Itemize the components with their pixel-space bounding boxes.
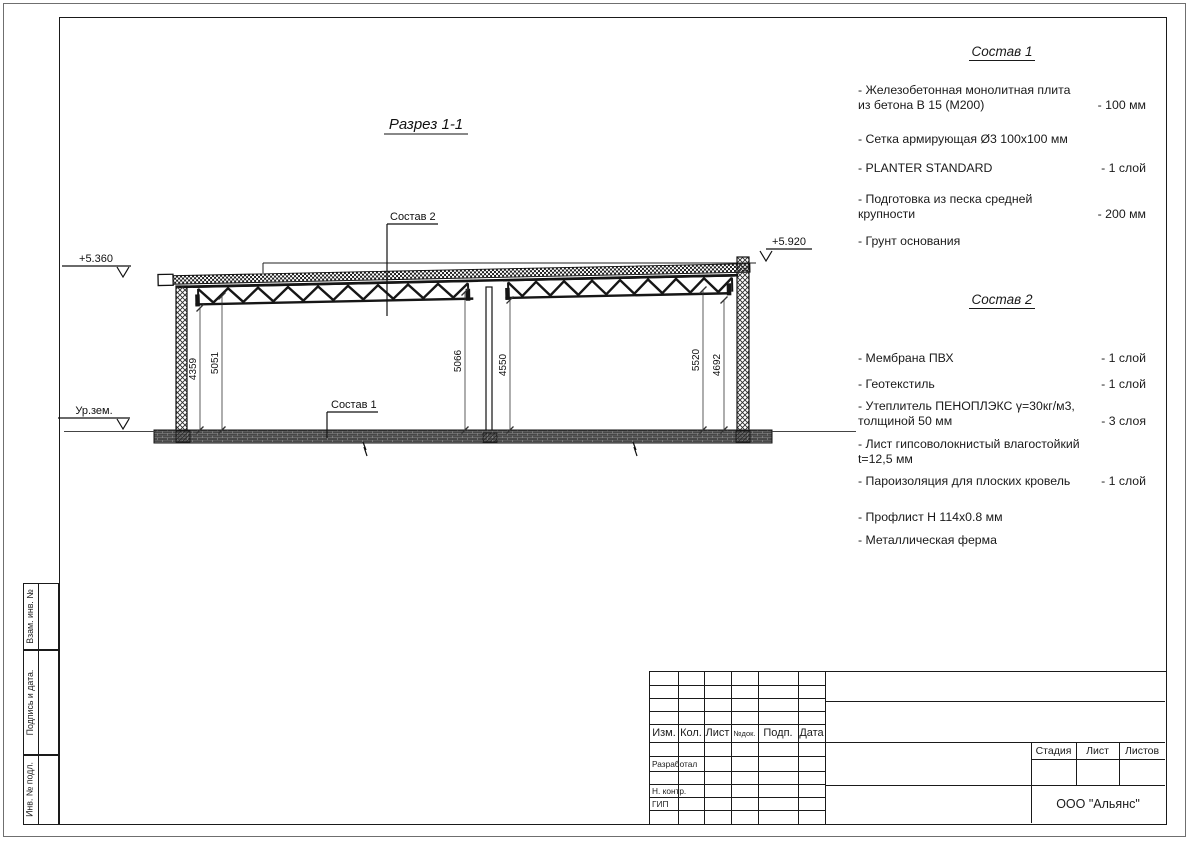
stamp-col-data: Дата	[798, 724, 825, 742]
stamp-stadia-label: Стадия	[1031, 742, 1076, 759]
title-block: Изм. Кол. Лист №док. Подп. Дата Разработ…	[649, 671, 1167, 825]
foundation-hatch-left	[176, 431, 190, 442]
material-value: - 100 мм	[1098, 98, 1146, 113]
material-name: - Профлист Н 114х0.8 мм	[858, 510, 1003, 525]
dim-text: 5520	[691, 348, 702, 371]
sostav2-panel: Состав 2 - Мембрана ПВХ - 1 слой - Геоте…	[858, 292, 1146, 548]
material-row: - Пароизоляция для плоских кровель - 1 с…	[858, 474, 1146, 489]
material-value: - 1 слой	[1101, 377, 1146, 392]
sostav2-title: Состав 2	[858, 292, 1146, 307]
dimension-5520: 5520	[691, 287, 707, 434]
sostav1-panel: Состав 1 - Железобетонная монолитная пли…	[858, 44, 1146, 249]
material-name: - Геотекстиль	[858, 377, 935, 392]
section-drawing: Разрез 1-1	[0, 0, 860, 560]
material-row: - Подготовка из песка средней крупности …	[858, 192, 1146, 221]
dim-text: 4550	[498, 353, 509, 376]
material-name: - Мембрана ПВХ	[858, 351, 954, 366]
dim-text: 5066	[453, 349, 464, 372]
material-row: - Железобетонная монолитная плита из бет…	[858, 83, 1146, 112]
stamp-listov-label: Листов	[1119, 742, 1165, 759]
leader-sostav1-text: Состав 1	[331, 399, 377, 411]
sostav2-title-text: Состав 2	[969, 292, 1036, 309]
side-label-vzam: Взам. инв. №	[23, 583, 38, 650]
material-value: - 200 мм	[1098, 207, 1146, 222]
leader-sostav2-text: Состав 2	[390, 211, 436, 223]
material-name: - Подготовка из песка средней крупности	[858, 192, 1032, 221]
wall-right	[737, 257, 749, 431]
view-title: Разрез 1-1	[384, 116, 468, 134]
material-row: - Лист гипсоволокнистый влагостойкий t=1…	[858, 437, 1146, 466]
material-row: - Мембрана ПВХ - 1 слой	[858, 351, 1146, 366]
sostav1-title: Состав 1	[858, 44, 1146, 59]
material-name: - Металлическая ферма	[858, 533, 997, 548]
stamp-col-kol: Кол.	[678, 724, 704, 742]
material-name: - Утеплитель ПЕНОПЛЭКС γ=30кг/м3, толщин…	[858, 399, 1075, 428]
elevation-mark-right: +5.920	[760, 236, 812, 261]
dim-text: 4692	[712, 353, 723, 376]
material-row: - Профлист Н 114х0.8 мм	[858, 510, 1146, 525]
material-row: - Утеплитель ПЕНОПЛЭКС γ=30кг/м3, толщин…	[858, 399, 1146, 428]
stamp-col-list: Лист	[704, 724, 731, 742]
column-middle	[486, 287, 492, 431]
side-label-podpis: Подпись и дата.	[23, 650, 38, 755]
stamp-col-izm: Изм.	[650, 724, 678, 742]
dimension-5066: 5066	[453, 289, 469, 434]
dimension-5051: 5051	[210, 293, 226, 434]
material-name: - Лист гипсоволокнистый влагостойкий t=1…	[858, 437, 1080, 466]
material-value: - 1 слой	[1101, 351, 1146, 366]
material-name: - PLANTER STANDARD	[858, 161, 992, 176]
side-label-inv: Инв. № подл.	[23, 755, 38, 825]
dimension-4550: 4550	[498, 297, 514, 434]
material-row: - Металлическая ферма	[858, 533, 1146, 548]
material-row: - PLANTER STANDARD - 1 слой	[858, 161, 1146, 176]
ground-level-text: Ур.зем.	[75, 405, 112, 417]
material-name: - Грунт основания	[858, 234, 960, 249]
material-name: - Железобетонная монолитная плита из бет…	[858, 83, 1070, 112]
material-value: - 3 слоя	[1101, 414, 1146, 429]
material-row: - Грунт основания	[858, 234, 1146, 249]
view-title-text: Разрез 1-1	[389, 116, 463, 133]
stamp-row-gip: ГИП	[650, 797, 706, 810]
stamp-company: ООО "Альянс"	[1031, 785, 1165, 823]
foundation-hatch-middle	[483, 433, 497, 442]
sostav1-title-text: Состав 1	[969, 44, 1036, 61]
material-name: - Пароизоляция для плоских кровель	[858, 474, 1070, 489]
dimension-4692: 4692	[712, 297, 728, 434]
stamp-row-nkontr: Н. контр.	[650, 784, 706, 797]
material-name: - Сетка армирующая Ø3 100х100 мм	[858, 132, 1068, 147]
wall-left	[176, 286, 187, 431]
elevation-right-text: +5.920	[772, 236, 806, 248]
truss-right	[503, 276, 735, 300]
foundation-hatch-right	[736, 431, 750, 442]
material-value: - 1 слой	[1101, 161, 1146, 176]
elevation-mark-left: +5.360	[62, 253, 131, 277]
roof-assembly	[158, 262, 750, 288]
dim-text: 5051	[210, 351, 221, 374]
ground-level-mark: Ур.зем.	[58, 405, 130, 429]
dim-text: 4359	[188, 357, 199, 380]
break-mark	[363, 442, 367, 456]
elevation-arrow-icon	[760, 251, 772, 261]
break-mark	[633, 442, 637, 456]
stamp-list-label: Лист	[1076, 742, 1119, 759]
material-row: - Геотекстиль - 1 слой	[858, 377, 1146, 392]
elevation-left-text: +5.360	[79, 253, 113, 265]
stamp-col-podp: Подп.	[758, 724, 798, 742]
elevation-arrow-icon	[117, 267, 129, 277]
material-value: - 1 слой	[1101, 474, 1146, 489]
stamp-row-razrabotal: Разработал	[650, 756, 706, 771]
stamp-col-ndok: №док.	[731, 724, 758, 742]
elevation-arrow-icon	[117, 419, 129, 429]
dimension-4359: 4359	[188, 305, 204, 434]
material-row: - Сетка армирующая Ø3 100х100 мм	[858, 132, 1146, 147]
